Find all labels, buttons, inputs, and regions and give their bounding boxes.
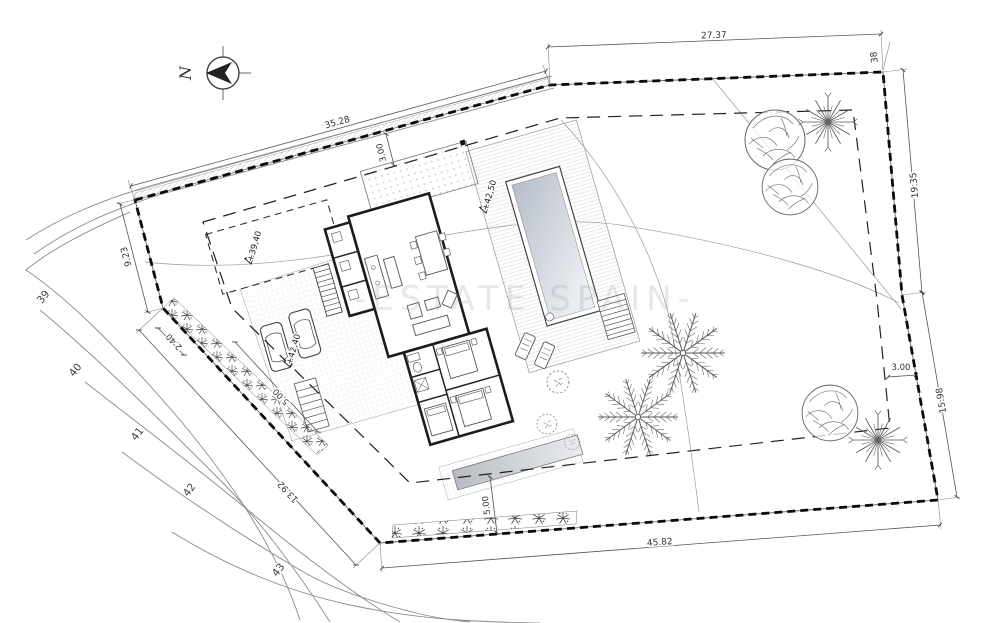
dimension-right-setback: 3.00 xyxy=(888,363,916,377)
site-plan-drawing: 39 40 41 42 43 xyxy=(0,0,1006,623)
svg-text:45.82: 45.82 xyxy=(647,537,673,549)
north-arrow: N xyxy=(176,46,251,100)
dimension-right-lower-edge: 15.98 xyxy=(922,292,960,500)
dimension-top-right-edge: 27.37 xyxy=(548,30,883,85)
svg-text:15.98: 15.98 xyxy=(935,387,949,414)
dimension-right-upper-edge: 19.35 xyxy=(883,69,926,295)
round-tree xyxy=(762,159,818,215)
svg-text:3.00: 3.00 xyxy=(892,363,911,373)
elevation-upper-plateau: +39,40 xyxy=(245,230,264,265)
svg-text:5.00: 5.00 xyxy=(481,495,493,515)
svg-text:3.00: 3.00 xyxy=(375,142,389,163)
svg-text:27.37: 27.37 xyxy=(701,31,727,42)
scrub xyxy=(547,371,569,393)
contour-label: 43 xyxy=(270,561,288,579)
contour-label: 40 xyxy=(67,361,85,379)
svg-text:13.92: 13.92 xyxy=(276,479,301,505)
house-complex xyxy=(200,108,667,544)
svg-text:2.40: 2.40 xyxy=(164,331,184,352)
svg-text:38: 38 xyxy=(869,51,880,64)
palm-tree xyxy=(598,377,678,456)
svg-text:+39,40: +39,40 xyxy=(246,230,264,263)
dimension-top-setback: 3.00 xyxy=(375,134,394,165)
scrub xyxy=(537,414,557,434)
spiky-tree xyxy=(799,93,858,152)
svg-text:9.23: 9.23 xyxy=(120,246,135,268)
contour-label: 39 xyxy=(35,288,53,306)
boundary-point-38: 38 xyxy=(869,42,890,70)
svg-text:19.35: 19.35 xyxy=(909,172,921,199)
site-plan-page: 39 40 41 42 43 xyxy=(0,0,1006,623)
palm-tree xyxy=(641,312,725,395)
dimension-hedge-offset: 2.40 xyxy=(158,328,185,355)
watermark: -ESTATE SPAIN- xyxy=(354,279,696,319)
round-tree xyxy=(802,385,858,441)
north-label: N xyxy=(176,65,195,81)
